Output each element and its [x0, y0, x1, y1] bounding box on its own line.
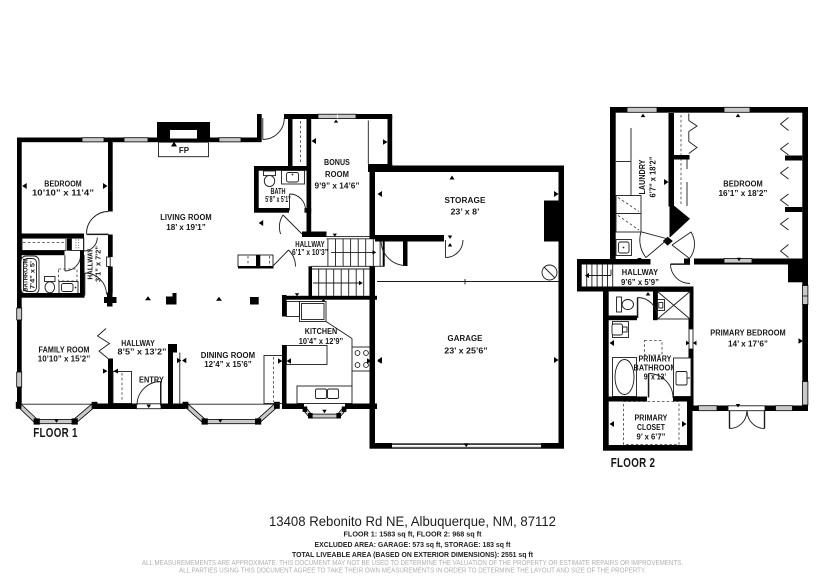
svg-text:HALLWAY: HALLWAY: [622, 267, 659, 277]
svg-text:7’4” x 5’: 7’4” x 5’: [30, 261, 37, 289]
svg-text:12’4” x 15’6”: 12’4” x 15’6”: [204, 360, 252, 369]
svg-text:BATHROOM: BATHROOM: [23, 258, 30, 291]
svg-text:KITCHEN: KITCHEN: [305, 326, 338, 336]
svg-text:9’6” x 5’9”: 9’6” x 5’9”: [621, 278, 659, 287]
svg-text:PRIMARY: PRIMARY: [635, 413, 668, 423]
svg-text:ALL PARTIES USING THIS DOCUMEN: ALL PARTIES USING THIS DOCUMENT AGREE TO…: [179, 568, 646, 575]
svg-text:18’ x 19’1”: 18’ x 19’1”: [166, 223, 206, 232]
svg-text:10’10” x 15’2”: 10’10” x 15’2”: [38, 355, 91, 364]
svg-text:8’5” x 13’2”: 8’5” x 13’2”: [118, 348, 167, 357]
svg-text:FLOOR 2: FLOOR 2: [611, 455, 656, 470]
svg-text:23’ x 25’6”: 23’ x 25’6”: [444, 347, 488, 356]
svg-text:23’ x 8’: 23’ x 8’: [451, 208, 480, 217]
svg-text:16’1” x 18’2”: 16’1” x 18’2”: [719, 189, 768, 198]
svg-text:5’8” x 5’1”: 5’8” x 5’1”: [265, 195, 291, 204]
svg-text:BATHROOM: BATHROOM: [634, 363, 677, 373]
svg-text:BEDROOM: BEDROOM: [723, 179, 763, 189]
svg-text:FLOOR 1: 1583 sq ft, FLOOR 2:: FLOOR 1: 1583 sq ft, FLOOR 2: 968 sq ft: [344, 530, 483, 539]
svg-text:6’7” x 18’2”: 6’7” x 18’2”: [649, 157, 658, 198]
svg-text:LAUNDRY: LAUNDRY: [637, 159, 647, 194]
svg-text:FAMILY ROOM: FAMILY ROOM: [39, 345, 90, 355]
svg-text:GARAGE: GARAGE: [448, 333, 483, 343]
svg-text:6’1” x 10’3”: 6’1” x 10’3”: [292, 248, 328, 257]
svg-text:FLOOR 1: FLOOR 1: [33, 425, 78, 440]
svg-text:10’4” x 12’9”: 10’4” x 12’9”: [299, 337, 344, 346]
svg-text:10’10” x 11’4”: 10’10” x 11’4”: [32, 189, 94, 198]
svg-text:STORAGE: STORAGE: [445, 195, 486, 205]
svg-text:DINING ROOM: DINING ROOM: [201, 350, 256, 360]
svg-text:TOTAL LIVEABLE AREA (BASED ON: TOTAL LIVEABLE AREA (BASED ON EXTERIOR D…: [292, 550, 534, 559]
svg-text:ROOM: ROOM: [325, 169, 349, 179]
svg-text:BONUS: BONUS: [324, 157, 350, 167]
svg-text:PRIMARY BEDROOM: PRIMARY BEDROOM: [710, 328, 786, 338]
svg-text:ALL MEASUREMEMENTS ARE APPROXI: ALL MEASUREMEMENTS ARE APPROXIMATE. THIS…: [142, 560, 683, 567]
svg-text:BEDROOM: BEDROOM: [44, 179, 82, 189]
svg-text:14’ x 17’6”: 14’ x 17’6”: [728, 340, 768, 349]
svg-text:LIVING ROOM: LIVING ROOM: [160, 212, 212, 222]
svg-text:CLOSET: CLOSET: [637, 422, 666, 432]
svg-text:13408 Rebonito Rd NE, Albuquer: 13408 Rebonito Rd NE, Albuquerque, NM, 8…: [269, 514, 556, 529]
svg-text:9’9” x 14’6”: 9’9” x 14’6”: [315, 182, 360, 191]
svg-text:HALLWAY: HALLWAY: [121, 338, 155, 348]
svg-text:FP: FP: [179, 146, 190, 155]
svg-text:EXCLUDED AREA: GARAGE: 573 sq: EXCLUDED AREA: GARAGE: 573 sq ft, STORAG…: [315, 540, 512, 549]
svg-text:9’ x 6’7”: 9’ x 6’7”: [637, 433, 666, 442]
svg-text:ENTRY: ENTRY: [139, 375, 164, 385]
